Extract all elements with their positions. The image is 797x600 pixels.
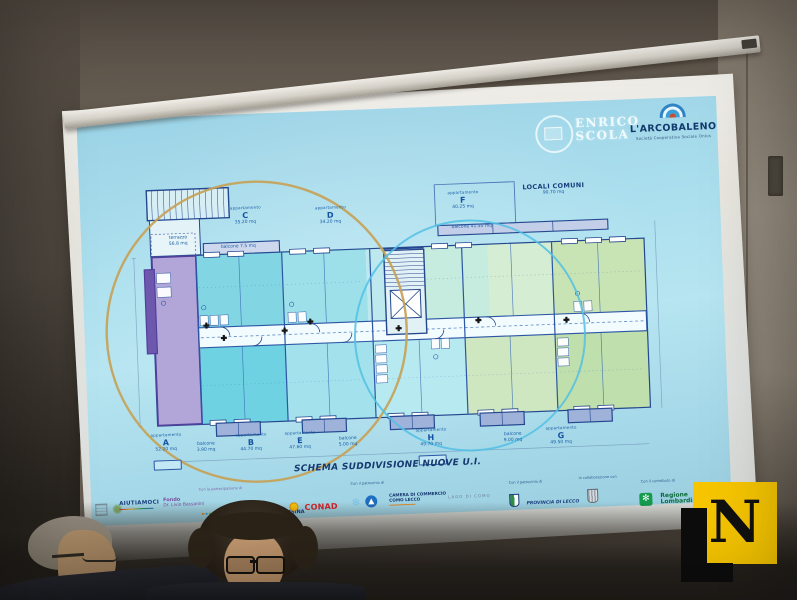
unit-label-g: appartamento G 49.50 mq	[546, 426, 577, 447]
caption-patrocinio-2: Con il patrocinio di	[509, 480, 543, 486]
city-crest-icon	[587, 488, 599, 502]
balcony-label-b: balcone 3.90 mq	[191, 441, 221, 453]
floor-plan	[129, 158, 671, 488]
conference-room-photo: ENRICO SCOLA L'ARCOBALENO Società Cooper…	[0, 0, 797, 600]
unit-label-f: appartamento F 40.25 mq	[447, 190, 478, 211]
caption-partecipazione: Con la partecipazione di	[199, 486, 243, 492]
seal-book-icon	[544, 127, 562, 141]
school-seal-icon	[535, 114, 574, 153]
news-watermark-logo: N	[678, 478, 797, 600]
unit-label-d: appartamento D 34.20 mq	[315, 205, 346, 226]
terrace-label: terrazzo 56.8 mq	[163, 235, 193, 247]
unit-label-a: appartamento A 52.20 mq	[151, 433, 182, 454]
common-rooms-label: LOCALI COMUNI 90.70 mq	[517, 181, 589, 198]
black-l-horizontal	[681, 563, 733, 582]
unit-label-e: appartamento E 47.60 mq	[285, 431, 316, 452]
unit-label-c: appartamento C 35.20 mq	[230, 205, 261, 226]
unit-label-b: appartamento B 44.70 mq	[236, 432, 267, 453]
unit-a-highlight	[154, 460, 182, 471]
caption-contributo: Con il contributo di	[641, 479, 675, 485]
balcony-label-g: balcone 9.00 mq	[498, 431, 528, 443]
caption-patrocinio-1: Con il patrocinio di	[351, 481, 385, 487]
unit-label-h: appartamento H 49.70 mq	[416, 427, 447, 448]
caption-collaborazione: in collaborazione con	[578, 475, 616, 481]
housing-brand-plate	[741, 39, 757, 50]
wall-recess	[768, 156, 783, 196]
letter-n: N	[693, 482, 777, 564]
arcobaleno-logo: L'ARCOBALENO Società Cooperativa Sociale…	[628, 100, 716, 103]
presentation-slide: ENRICO SCOLA L'ARCOBALENO Società Cooper…	[76, 96, 731, 526]
balcony-label-e: balcone 5.00 mq	[333, 436, 363, 448]
sponsor-lago-di-como: LAGO DI COMO	[448, 494, 491, 500]
